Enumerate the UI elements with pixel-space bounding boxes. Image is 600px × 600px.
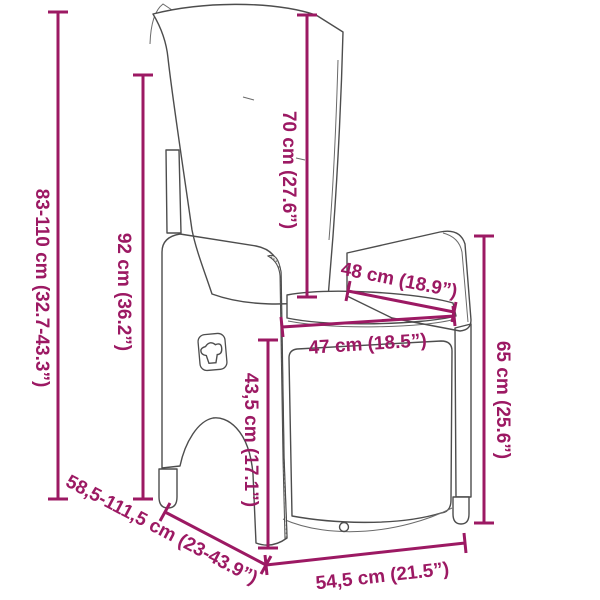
front-right-foot [453,497,469,524]
dim-base-width: 54,5 cm (21.5”) [265,533,466,594]
dim-side-height-label: 65 cm (25.6”) [492,341,513,459]
footrest-panel [289,341,452,522]
back-left-foot [159,469,177,508]
dimension-diagram: 83-110 cm (32.7-43.3”) 92 cm (36.2”) 70 … [0,0,600,600]
backrest-side-frame [166,150,181,233]
right-side-rail [455,324,471,497]
dim-total-height-label: 83-110 cm (32.7-43.3”) [31,189,52,388]
dim-seat-front-height-label: 43,5 cm (17.1”) [240,373,261,507]
dim-backrest-height: 92 cm (36.2”) [113,75,153,499]
dim-base-width-label: 54,5 cm (21.5”) [315,559,451,595]
dim-total-height-range: 83-110 cm (32.7-43.3”) [31,12,68,499]
dim-seat-front-height: 43,5 cm (17.1”) [240,340,278,548]
dim-side-height: 65 cm (25.6”) [474,236,513,523]
caster-wheel [340,523,349,532]
diagram-canvas: 83-110 cm (32.7-43.3”) 92 cm (36.2”) 70 … [0,0,600,600]
dim-back-cushion-label: 70 cm (27.6”) [278,111,299,229]
dim-backrest-height-label: 92 cm (36.2”) [113,233,134,351]
back-cushion [153,4,343,304]
armrest-badge [197,333,227,371]
